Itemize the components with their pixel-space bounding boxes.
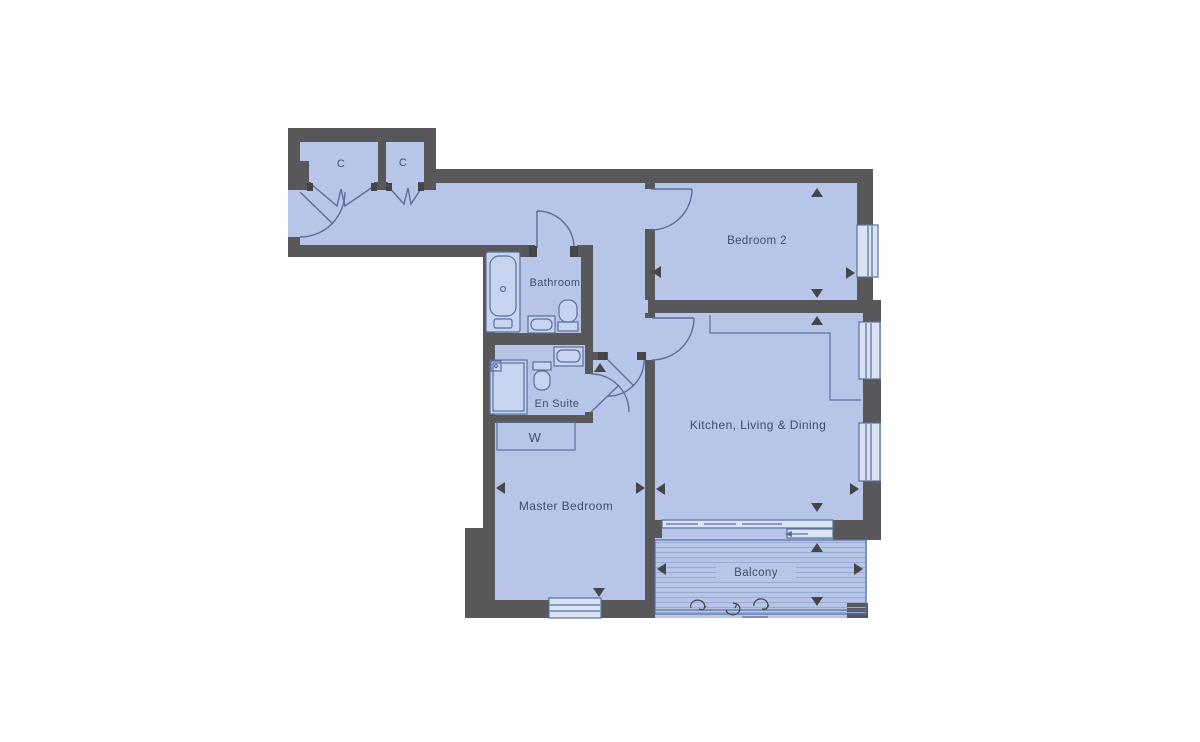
door-jamb-mark bbox=[570, 246, 578, 257]
window-kitchen-upper bbox=[859, 322, 880, 379]
room-label-master-bedroom: Master Bedroom bbox=[519, 499, 613, 513]
door-jamb-mark bbox=[418, 183, 424, 191]
door-jamb-mark bbox=[598, 352, 607, 360]
room-label-en-suite: En Suite bbox=[535, 398, 580, 410]
basin-icon-bathroom bbox=[528, 316, 555, 333]
toilet-icon-ensuite bbox=[533, 362, 551, 390]
door-jamb-mark bbox=[637, 352, 646, 360]
door-jamb-mark bbox=[307, 183, 313, 191]
basin-icon-ensuite bbox=[554, 347, 583, 366]
room-label-balcony: Balcony bbox=[734, 567, 778, 579]
room-label-closet-1: C bbox=[337, 158, 345, 170]
room-label-kitchen-living-dining: Kitchen, Living & Dining bbox=[690, 418, 826, 432]
door-jamb-mark bbox=[371, 183, 377, 191]
window-bedroom2 bbox=[857, 225, 878, 277]
bathtub-icon bbox=[486, 252, 520, 332]
door-jamb-mark bbox=[386, 183, 392, 191]
floor-plan-image: C C Bathroom Bedroom 2 En Suite W Kitche… bbox=[0, 0, 1200, 742]
door-jamb-mark bbox=[529, 246, 537, 257]
window-master-bedroom bbox=[549, 598, 601, 618]
room-label-bathroom: Bathroom bbox=[530, 277, 581, 289]
toilet-icon-bathroom bbox=[558, 300, 578, 331]
window-kitchen-lower bbox=[859, 423, 880, 481]
room-label-bedroom-2: Bedroom 2 bbox=[727, 235, 787, 247]
room-label-closet-2: C bbox=[399, 157, 407, 169]
room-label-wardrobe: W bbox=[529, 430, 542, 445]
floor-plan-page: C C Bathroom Bedroom 2 En Suite W Kitche… bbox=[0, 0, 1200, 742]
shower-icon bbox=[490, 360, 527, 414]
